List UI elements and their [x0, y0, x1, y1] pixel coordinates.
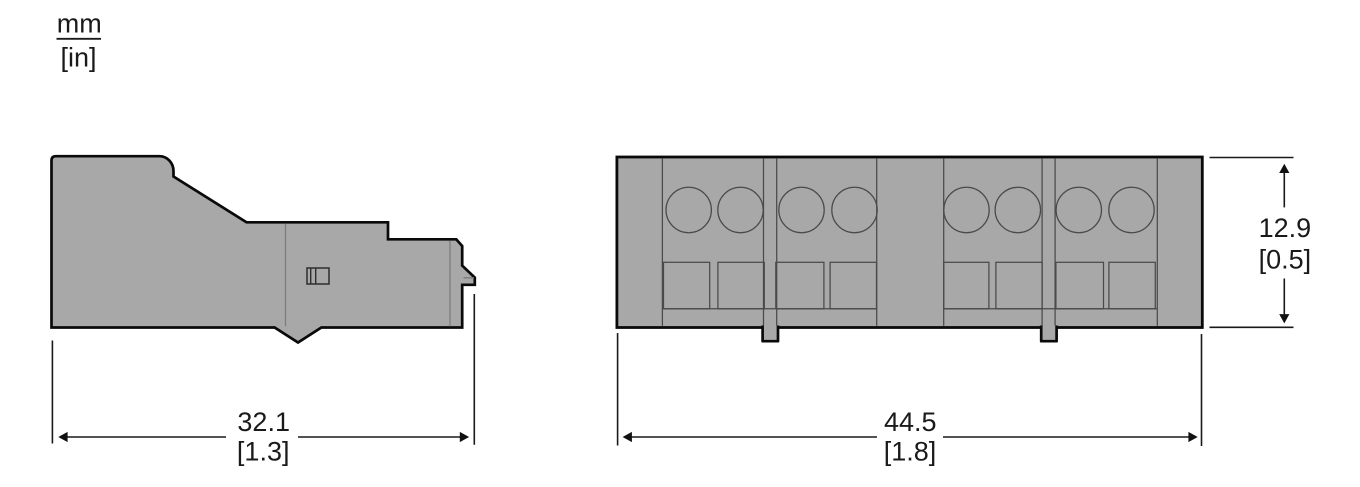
svg-text:[1.8]: [1.8] [884, 437, 937, 467]
svg-text:12.9: 12.9 [1259, 213, 1312, 243]
svg-text:44.5: 44.5 [884, 407, 937, 437]
svg-text:[0.5]: [0.5] [1259, 244, 1312, 274]
svg-text:mm: mm [57, 8, 102, 38]
svg-text:[in]: [in] [60, 42, 96, 72]
svg-text:[1.3]: [1.3] [237, 437, 290, 467]
svg-text:32.1: 32.1 [237, 407, 290, 437]
